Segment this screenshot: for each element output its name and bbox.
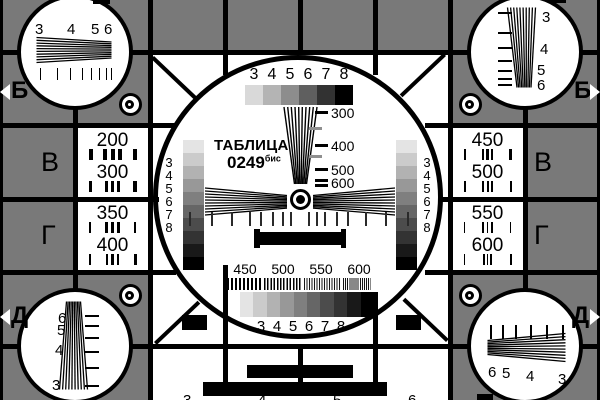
calibration-tick bbox=[290, 212, 292, 226]
card-number-value: 0249 bbox=[227, 153, 265, 172]
fan-label: 4 bbox=[55, 343, 63, 358]
fan-label: 5 bbox=[502, 366, 510, 381]
fan-label: 3 bbox=[558, 372, 566, 387]
fan-label: 5 bbox=[537, 63, 545, 78]
resolution-value: 300 bbox=[92, 163, 133, 182]
calibration-tick bbox=[324, 212, 326, 226]
row-marker-arrow-icon bbox=[0, 309, 10, 325]
center-bar bbox=[257, 232, 343, 246]
bottom-grayscale-staircase bbox=[240, 292, 374, 317]
resolution-ticks bbox=[464, 254, 512, 265]
resolution-fan bbox=[471, 0, 578, 105]
center-bar-cap bbox=[254, 229, 260, 249]
row-marker: Б bbox=[11, 79, 28, 103]
resolution-fan bbox=[21, 292, 128, 399]
grid-stub bbox=[425, 123, 448, 128]
fan-label: 3 bbox=[52, 378, 60, 393]
tv-test-card: 3 4 5 6 7 8 300 400 500 600 ТАБЛИЦА 0249… bbox=[0, 0, 600, 400]
edge-digit-bottom: 6 bbox=[408, 393, 416, 400]
resolution-ticks bbox=[464, 181, 512, 192]
frequency-grating bbox=[227, 278, 373, 290]
resolution-value: 200 bbox=[92, 131, 133, 150]
calibration-tick bbox=[260, 212, 262, 226]
corner-circle-top-left: 3 4 5 6 bbox=[17, 0, 133, 110]
center-bullseye-icon bbox=[290, 189, 311, 210]
calibration-tick bbox=[189, 212, 191, 226]
resolution-value: 550 bbox=[467, 204, 508, 223]
left-scale-labels: 3 4 5 6 7 8 bbox=[161, 156, 177, 234]
black-reference-square bbox=[182, 315, 207, 330]
scale-dash bbox=[315, 168, 328, 171]
grid-stub bbox=[373, 54, 378, 75]
grid-stub bbox=[442, 197, 453, 202]
resolution-value: 600 bbox=[467, 236, 508, 255]
row-marker-arrow-icon bbox=[590, 84, 600, 100]
bullseye-icon bbox=[119, 93, 142, 116]
wedge-scale-label: 300 bbox=[331, 106, 354, 120]
corner-circle-bottom-right: 6 5 4 3 bbox=[467, 288, 583, 400]
scale-dash-minor bbox=[309, 155, 322, 158]
wedge-scale-label: 400 bbox=[331, 139, 354, 153]
scale-dash bbox=[315, 111, 328, 114]
resolution-value: 450 bbox=[467, 131, 508, 150]
bullseye-icon bbox=[459, 284, 482, 307]
resolution-ticks bbox=[464, 222, 512, 233]
top-grayscale-staircase bbox=[245, 85, 353, 105]
bullseye-icon bbox=[119, 284, 142, 307]
black-reference-square bbox=[396, 315, 421, 330]
fan-label: 3 bbox=[542, 10, 550, 25]
calibration-tick bbox=[249, 212, 251, 226]
calibration-tick bbox=[365, 212, 367, 226]
row-marker: Д bbox=[572, 304, 589, 328]
card-number: 0249бис bbox=[227, 154, 281, 171]
column-letter: Г bbox=[41, 222, 56, 249]
fan-label: 5 bbox=[91, 22, 99, 37]
fan-label: 6 bbox=[488, 365, 496, 380]
calibration-tick bbox=[336, 212, 338, 226]
edge-digit-top: 4 bbox=[258, 0, 266, 3]
cropped-row-content bbox=[93, 0, 110, 4]
right-scale-labels: 3 4 5 6 7 8 bbox=[419, 156, 435, 234]
calibration-tick bbox=[316, 212, 318, 226]
row-marker-arrow-icon bbox=[590, 309, 600, 325]
fan-label: 3 bbox=[35, 22, 43, 37]
right-grayscale-strip bbox=[396, 140, 417, 270]
calibration-tick bbox=[347, 212, 349, 226]
row-marker-arrow-icon bbox=[0, 84, 10, 100]
resolution-ticks bbox=[89, 254, 137, 265]
edge-digit-top: 5 bbox=[333, 0, 341, 3]
column-letter: В bbox=[41, 149, 59, 176]
calibration-tick bbox=[385, 212, 387, 226]
fan-label: 5 bbox=[57, 323, 65, 338]
resolution-value: 350 bbox=[92, 204, 133, 223]
resolution-ticks bbox=[464, 149, 512, 160]
edge-digit-top: 6 bbox=[408, 0, 416, 3]
corner-circle-top-right: 3 4 5 6 bbox=[467, 0, 583, 110]
card-number-suffix: бис bbox=[265, 153, 281, 163]
edge-digit-bottom: 4 bbox=[258, 393, 266, 400]
calibration-tick bbox=[231, 212, 233, 226]
scale-dash-minor bbox=[309, 127, 322, 130]
resolution-value: 500 bbox=[467, 163, 508, 182]
grid-stub bbox=[223, 349, 228, 383]
resolution-value: 400 bbox=[92, 236, 133, 255]
bottom-freq-labels: 450 500 550 600 bbox=[226, 262, 378, 276]
grid-stub bbox=[425, 270, 448, 275]
calibration-tick bbox=[272, 212, 274, 226]
calibration-tick bbox=[282, 212, 284, 226]
top-scale-labels: 3 4 5 6 7 8 bbox=[245, 67, 353, 83]
bottom-scale-labels: 3 4 5 6 7 8 bbox=[253, 319, 349, 334]
edge-digit-bottom: 5 bbox=[333, 393, 341, 400]
fan-label: 6 bbox=[537, 78, 545, 93]
card-title: ТАБЛИЦА bbox=[214, 138, 289, 153]
grid-stub bbox=[153, 270, 176, 275]
scale-dash bbox=[315, 144, 328, 147]
column-letter: В bbox=[534, 149, 552, 176]
resolution-ticks bbox=[89, 222, 137, 233]
edge-digit-top: 3 bbox=[183, 0, 191, 3]
calibration-tick bbox=[211, 212, 213, 226]
resolution-fan bbox=[21, 0, 128, 105]
corner-circle-bottom-left: 6 5 4 3 bbox=[17, 288, 133, 400]
fan-label: 4 bbox=[67, 22, 75, 37]
bullseye-icon bbox=[459, 93, 482, 116]
row-marker: Д bbox=[11, 304, 28, 328]
cropped-row-content bbox=[477, 394, 493, 400]
sync-bar-long bbox=[203, 382, 387, 396]
fan-label: 6 bbox=[104, 22, 112, 37]
resolution-ticks bbox=[89, 181, 137, 192]
calibration-tick bbox=[407, 212, 409, 226]
grid-stub bbox=[373, 349, 378, 383]
scale-dash bbox=[315, 179, 328, 182]
edge-digit-bottom: 3 bbox=[183, 393, 191, 400]
left-grayscale-strip bbox=[183, 140, 204, 270]
fan-label: 4 bbox=[526, 369, 534, 384]
column-letter: Г bbox=[534, 222, 549, 249]
center-bar-cap bbox=[341, 229, 347, 249]
calibration-tick bbox=[308, 212, 310, 226]
sync-bar-short bbox=[247, 365, 353, 379]
resolution-ticks bbox=[89, 149, 137, 160]
cropped-row-content bbox=[549, 0, 566, 3]
fan-label: 4 bbox=[540, 42, 548, 57]
